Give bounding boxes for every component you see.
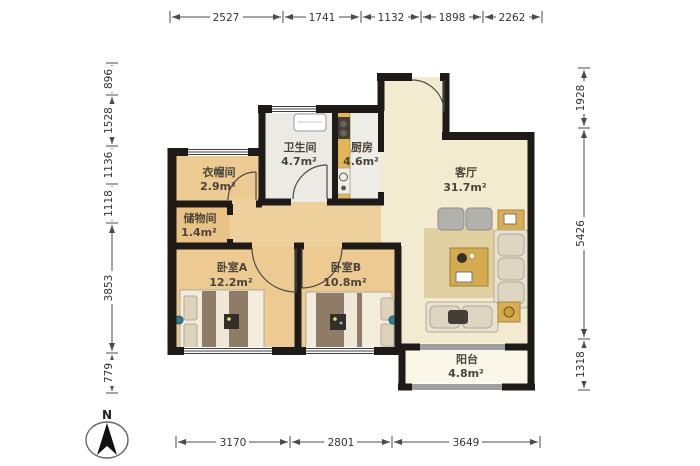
- dim-right-3: 1318: [575, 351, 587, 378]
- bed-a: [175, 290, 264, 350]
- dim-left-1: 896: [103, 69, 115, 89]
- dim-left-6: 779: [103, 363, 115, 383]
- dim-right-2: 5426: [575, 220, 587, 247]
- dim-bottom-2: 2801: [328, 437, 355, 449]
- compass-needle-icon: [97, 423, 117, 455]
- bedroom-a-label: 卧室A: [217, 260, 248, 274]
- balcony-area: 4.8m²: [448, 367, 484, 380]
- floor-plan-page: 卫生间 4.7m² 厨房 4.6m² 客厅 31.7m² 衣帽间 2.9m² 储…: [0, 0, 700, 466]
- bathroom-window: [272, 105, 316, 113]
- dim-top-3: 1132: [378, 12, 405, 24]
- bedroom-b-window: [306, 347, 374, 355]
- dim-top-5: 2262: [499, 12, 526, 24]
- bedroom-a-area: 12.2m²: [209, 276, 253, 289]
- dim-right-1: 1928: [575, 85, 587, 112]
- bedroom-b-label: 卧室B: [331, 260, 361, 274]
- living-room-label: 客厅: [454, 165, 477, 179]
- floor-plan-canvas: 卫生间 4.7m² 厨房 4.6m² 客厅 31.7m² 衣帽间 2.9m² 储…: [0, 0, 700, 466]
- cloakroom-area: 2.9m²: [200, 180, 236, 193]
- tray: [448, 310, 468, 324]
- dim-left-3: 1136: [103, 151, 115, 178]
- dim-bottom-3: 3649: [453, 437, 480, 449]
- storage-label: 储物间: [184, 211, 217, 225]
- cloakroom-label: 衣帽间: [203, 165, 236, 179]
- dim-top-1: 2527: [213, 12, 240, 24]
- dim-top-2: 1741: [309, 12, 336, 24]
- bathroom-basin: [294, 114, 326, 131]
- kitchen-label: 厨房: [351, 140, 373, 154]
- dimensions-right: 1928 5426 1318: [575, 68, 591, 390]
- armchair: [438, 208, 464, 230]
- balcony-door-window: [420, 344, 505, 351]
- dim-bottom-1: 3170: [220, 437, 247, 449]
- kitchen-area: 4.6m²: [343, 155, 379, 168]
- cloakroom-window: [188, 148, 248, 156]
- cloakroom-floor: [172, 152, 262, 206]
- bedroom-a-window: [184, 347, 272, 355]
- dimensions-top: 2527 1741 1132 1898 2262: [170, 11, 542, 24]
- living-room-furniture: [424, 208, 528, 332]
- compass: N: [86, 408, 128, 458]
- dim-top-4: 1898: [439, 12, 466, 24]
- armchair: [466, 208, 492, 230]
- dim-left-5: 3853: [103, 275, 115, 302]
- bathroom-label: 卫生间: [284, 140, 317, 154]
- dimensions-bottom: 3170 2801 3649: [176, 436, 540, 449]
- bedroom-b-area: 10.8m²: [323, 276, 367, 289]
- dimensions-left: 896 1528 1136 1118 3853 779: [103, 63, 119, 393]
- compass-north-label: N: [102, 408, 112, 422]
- dim-left-4: 1118: [103, 190, 115, 217]
- balcony-window: [412, 384, 502, 391]
- balcony-label: 阳台: [456, 352, 478, 366]
- storage-area: 1.4m²: [181, 226, 217, 239]
- dim-left-2: 1528: [103, 107, 115, 134]
- bathroom-area: 4.7m²: [281, 155, 317, 168]
- living-room-area: 31.7m²: [443, 181, 487, 194]
- bed-b: [306, 292, 397, 350]
